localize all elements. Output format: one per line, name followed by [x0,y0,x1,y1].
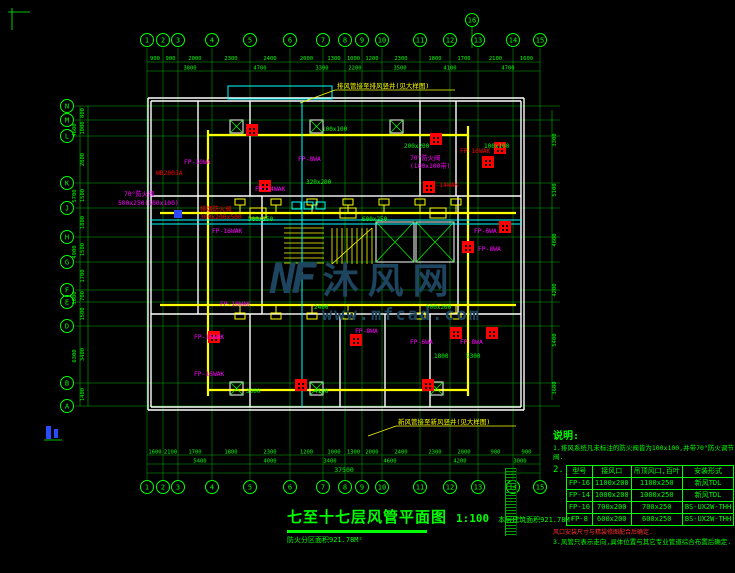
plan-label: 1700 [80,269,86,282]
plan-label: 2400 [263,56,276,62]
plan-label: 1800 [224,450,237,456]
plan-label: 1 [145,37,149,45]
plan-label: 3600 [552,381,558,394]
notes-heading: 说明: [553,427,735,442]
notes-block: 说明: 1.排风系统凡未标注的防火阀皆为100x100,并带70°防火调节阀. … [553,427,735,546]
table-cell: 1000x250 [631,489,682,501]
table-cell: 新风TDL [682,489,733,501]
plan-label: 2300 [394,56,407,62]
table-row: FP-8600x200600x250BS-UX2W-THH [566,513,733,525]
table-cell: 1100x250 [631,477,682,489]
plan-label: FP-16WAK [194,334,225,341]
plan-label: (100x100带) [410,162,450,170]
plan-label: FP-8WA [355,328,378,335]
plan-label: 1500 [80,307,86,320]
table-header: 安装形式 [682,465,733,477]
table-cell: 600x250 [631,513,682,525]
table-cell: 1100x200 [592,477,631,489]
plan-label: 4600 [72,123,78,136]
plan-label: 1700 [188,450,201,456]
plan-label: 1800 [434,353,449,360]
plan-label: M [65,117,69,125]
plan-label: 3400 [80,348,86,361]
plan-label: 8 [343,484,347,492]
drawing-scale: 1:100 [456,512,489,525]
plan-label: 3300 [246,388,261,395]
plan-label: 100x100 [322,126,348,133]
diffuser [235,199,245,205]
plan-label: 4700 [253,66,266,72]
table-cell: FP-10 [566,501,592,513]
plan-label: 600x250 [362,216,388,223]
plan-label: 4600 [383,459,396,465]
plan-label: 4 [210,484,214,492]
plan-label: 1000 [347,56,360,62]
plan-label: 1600 [520,56,533,62]
plan-label: A [65,403,70,411]
plan-label: 1200 [365,56,378,62]
fan-coil-unit [486,327,498,339]
plan-label: 4100 [443,66,456,72]
plan-label: B [65,380,69,388]
valve [174,210,182,218]
plan-label: 2300 [263,450,276,456]
plan-label: FP-8WA [478,246,501,253]
watermark: NF 沐风网 www.mfcad.com [270,252,481,325]
plan-label: 4200 [453,459,466,465]
plan-label: 4200 [552,283,558,296]
plan-label: FP-10WAK [220,301,251,308]
plan-label: 9 [360,37,364,45]
plan-label: 500x250(100x100) [118,200,179,207]
plan-label: FP-8WA [298,156,321,163]
plan-label: 3 [176,484,180,492]
plan-label: 15 [536,484,544,492]
plan-label: 排烟防火阀 [200,204,231,213]
plan-label: 排风管接至排风竖井(见大样图) [337,81,429,90]
fan-coil-unit [430,133,442,145]
plan-label: 4100 [314,388,329,395]
note-3: 3.风管只表示走向,具体位置与其它专业管道综合布置后确定. [553,538,735,546]
plan-label: 1200 [300,450,313,456]
plan-label: 300x200x500 [200,214,242,221]
plan-label: 2400 [394,450,407,456]
fan-coil-unit [295,379,307,391]
plan-label: 6300 [72,349,78,362]
plan-label: 1000 [80,121,86,134]
plan-label: FP-6WA [410,339,433,346]
plan-label: 15 [536,37,544,45]
plan-label: 3800 [183,66,196,72]
table-cell: BS-UX2W-THH [682,501,733,513]
plan-label: 12 [446,484,454,492]
plan-label: 37500 [334,466,354,474]
plan-label: 2000 [365,450,378,456]
table-header: 接风口 [592,465,631,477]
table-cell: BS-UX2W-THH [682,513,733,525]
table-cell: 700x200 [592,501,631,513]
plan-label: D [65,323,69,331]
note-1: 1.排风系统凡未标注的防火阀皆为100x100,并带70°防火调节阀. [553,444,735,462]
plan-label: FP-6WA [474,228,497,235]
plan-label: 1400 [80,388,86,401]
table-cell: 600x200 [592,513,631,525]
plan-label: G [65,259,69,267]
plan-label: 2200 [348,66,361,72]
plan-label: 2000 [457,450,470,456]
fan-coil-unit [422,379,434,391]
cad-canvas: 1122334455667788991010111112121313141415… [0,0,735,573]
plan-label: 16 [468,17,476,25]
plan-label: 900 [150,56,160,62]
watermark-logo-icon: NF [270,254,313,303]
plan-label: 900 [491,450,501,456]
fire-zone-note: 防火分区面积921.78M² [287,535,574,545]
plan-label: N [65,103,69,111]
diffuser [379,199,389,205]
table-row: FP-141000x2001000x250新风TDL [566,489,733,501]
plan-label: 4 [210,37,214,45]
table-row: FP-10700x200700x250BS-UX2W-THH [566,501,733,513]
plan-label: 5100 [552,183,558,196]
plan-label: 7 [321,37,325,45]
plan-label: 1300 [327,56,340,62]
plan-label: 800 [80,108,86,118]
plan-label: 11 [416,37,424,45]
plan-label: 13 [474,37,482,45]
plan-label: 500x250 [248,216,274,223]
plan-label: 11 [416,484,424,492]
table-row: FP-161100x2001100x250新风TDL [566,477,733,489]
plan-label: 5 [248,484,252,492]
fan-coil-unit [482,156,494,168]
plan-label: 2000 [188,56,201,62]
plan-label: 2000 [300,56,313,62]
plan-label: 3000 [513,459,526,465]
plan-label: 320x200 [306,179,332,186]
plan-label: 新风管接至新风竖井(见大样图) [398,417,490,426]
plan-label: FP-10WA [184,159,211,166]
table-cell: FP-14 [566,489,592,501]
plan-label: 5700 [72,189,78,202]
plan-label: 4000 [263,459,276,465]
diffuser [343,199,353,205]
plan-label: 3300 [315,66,328,72]
plan-label: 1000 [327,450,340,456]
plan-label: 3300 [552,133,558,146]
table-header: 型号 [566,465,592,477]
plan-label: 14 [509,37,517,45]
plan-label: 2800 [80,153,86,166]
watermark-url: www.mfcad.com [322,305,481,325]
plan-label: 3400 [323,459,336,465]
fan-coil-table: 型号 接风口 吊顶风口,百叶 安装形式 FP-161100x2001100x25… [566,465,734,526]
plan-label: 900 [166,56,176,62]
plan-label: 200x200 [404,143,430,150]
plan-label: 1 [145,484,149,492]
plan-label: FP-14WAK [428,182,459,189]
title-underline [287,530,427,533]
plan-label: 1800 [80,216,86,229]
plan-label: 70°防火阀 [410,153,440,162]
plan-label: F [65,287,69,295]
plan-label: K [65,180,70,188]
table-cell: FP-8 [566,513,592,525]
plan-label: 700 [80,291,86,301]
diffuser [451,199,461,205]
diffuser [271,199,281,205]
plan-label: FP-8WA [460,339,483,346]
title-block: 七至十七层风管平面图 1:100 本层建筑面积921.78M² 防火分区面积92… [287,506,574,545]
watermark-brand: 沐风网 [323,252,458,304]
plan-label: 70°防火阀 [124,189,154,198]
plan-label: 10 [378,37,386,45]
plan-label: 7 [321,484,325,492]
plan-label: 2100 [489,56,502,62]
plan-label: 1500 [80,243,86,256]
plan-label: 10 [378,484,386,492]
table-cell: 700x250 [631,501,682,513]
table-cell: 新风TDL [682,477,733,489]
plan-label: 900 [522,450,532,456]
plan-label: 1700 [457,56,470,62]
plan-label: 8 [343,37,347,45]
plan-label: FP-16WAK [194,371,225,378]
fan-coil-unit [499,221,511,233]
plan-label: H [65,234,69,242]
plan-label: FP-16WAK [212,228,243,235]
plan-label: 13 [474,484,482,492]
plan-label: 5400 [552,333,558,346]
fan-coil-unit [246,124,258,136]
plan-label: FP-14WAK [255,186,286,193]
plan-label: 9 [360,484,364,492]
table-cell: 1000x200 [592,489,631,501]
drawing-title: 七至十七层风管平面图 [287,506,447,527]
plan-label: 1500 [80,189,86,202]
plan-label: 100x100 [484,143,510,150]
table-footnote: 风口安装尺寸与精装修图配合后确定. [553,527,735,536]
plan-label: 4900 [72,245,78,258]
plan-label: E [65,299,69,307]
plan-label: 2300 [224,56,237,62]
plan-label: L [65,133,69,141]
plan-label: J [65,205,69,213]
table-cell: FP-16 [566,477,592,489]
plan-label: 1800 [428,56,441,62]
plan-label: 3800 [72,291,78,304]
plan-label: 2300 [428,450,441,456]
plan-label: 3500 [393,66,406,72]
plan-label: 2 [161,37,165,45]
plan-label: 4700 [501,66,514,72]
table-header-row: 型号 接风口 吊顶风口,百叶 安装形式 [566,465,733,477]
plan-label: 5 [248,37,252,45]
note-2-index: 2. [553,465,564,475]
plan-label: 1600 [148,450,161,456]
plan-label: 4800 [552,233,558,246]
plan-label: 2100 [164,450,177,456]
fan-coil-unit [350,334,362,346]
plan-label: 6 [288,484,292,492]
plan-label: 12 [446,37,454,45]
fan-coil-unit [450,327,462,339]
plan-label: 6 [288,37,292,45]
table-header: 吊顶风口,百叶 [631,465,682,477]
plan-label: 1300 [347,450,360,456]
plan-label: 3 [176,37,180,45]
plan-label: WB200JA [156,170,183,177]
plan-label: 5400 [193,459,206,465]
plan-label: 2 [161,484,165,492]
plan-label: 5300 [466,353,481,360]
